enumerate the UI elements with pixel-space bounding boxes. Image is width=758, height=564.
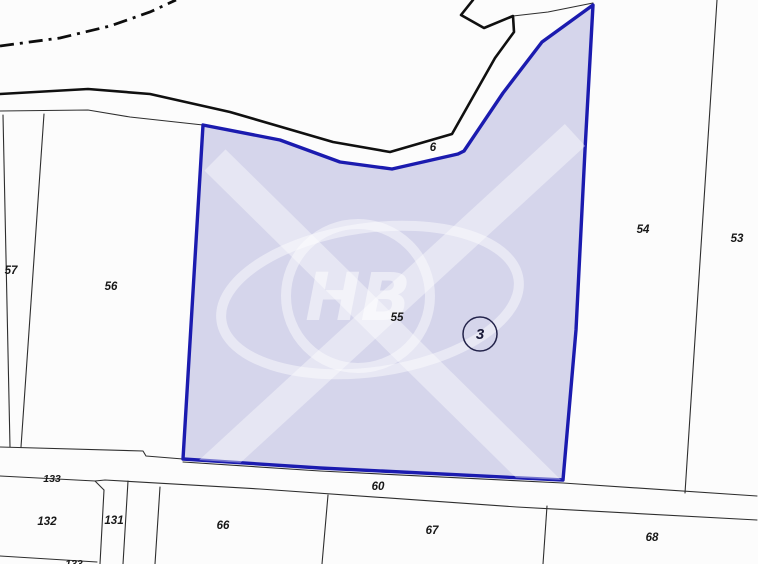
watermark-logo-text: НВ	[305, 259, 411, 336]
parcel-label-68: 68	[646, 532, 659, 544]
road-label-6: 6	[430, 142, 437, 154]
road-label-133-bottom: 133	[65, 558, 83, 564]
parcel-label-67: 67	[426, 525, 439, 537]
parcel-label-66: 66	[217, 520, 230, 532]
parcel-label-131: 131	[104, 515, 123, 527]
parcel-label-132: 132	[37, 516, 57, 528]
parcel-label-53: 53	[731, 233, 744, 245]
parcel-label-56: 56	[105, 281, 118, 293]
cadastral-map: НВ 57 56 6 54 53 55 60 133 132 131 66 67…	[0, 0, 758, 564]
road-label-60: 60	[372, 481, 385, 493]
parcel-label-54: 54	[637, 224, 650, 236]
road-label-133: 133	[43, 473, 61, 485]
parcel-label-57: 57	[5, 265, 18, 277]
marker-number: 3	[476, 326, 485, 343]
map-canvas: НВ 57 56 6 54 53 55 60 133 132 131 66 67…	[0, 0, 758, 564]
parcel-label-55: 55	[391, 312, 404, 324]
